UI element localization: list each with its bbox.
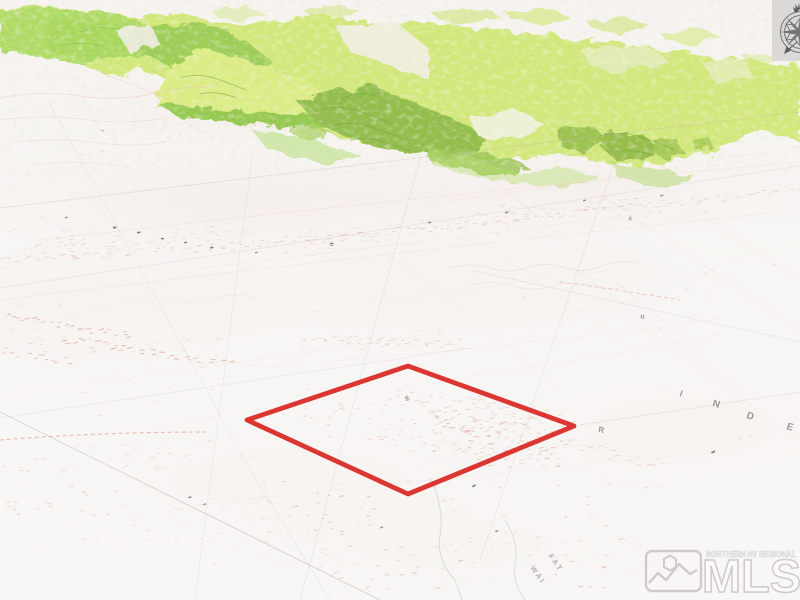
svg-text:MLS: MLS — [702, 550, 800, 600]
